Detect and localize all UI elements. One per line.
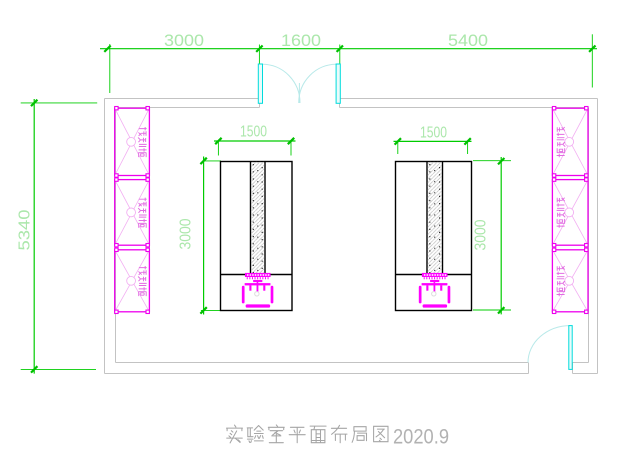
svg-text:1500: 1500 bbox=[240, 124, 267, 141]
svg-text:1600: 1600 bbox=[281, 31, 321, 50]
svg-text:3000: 3000 bbox=[178, 218, 195, 249]
svg-text:2020.9: 2020.9 bbox=[393, 426, 449, 449]
svg-text:5340: 5340 bbox=[17, 209, 34, 250]
svg-text:3000: 3000 bbox=[473, 219, 490, 250]
svg-text:5400: 5400 bbox=[448, 31, 488, 50]
svg-text:3000: 3000 bbox=[164, 31, 204, 50]
svg-text:1500: 1500 bbox=[420, 125, 447, 142]
